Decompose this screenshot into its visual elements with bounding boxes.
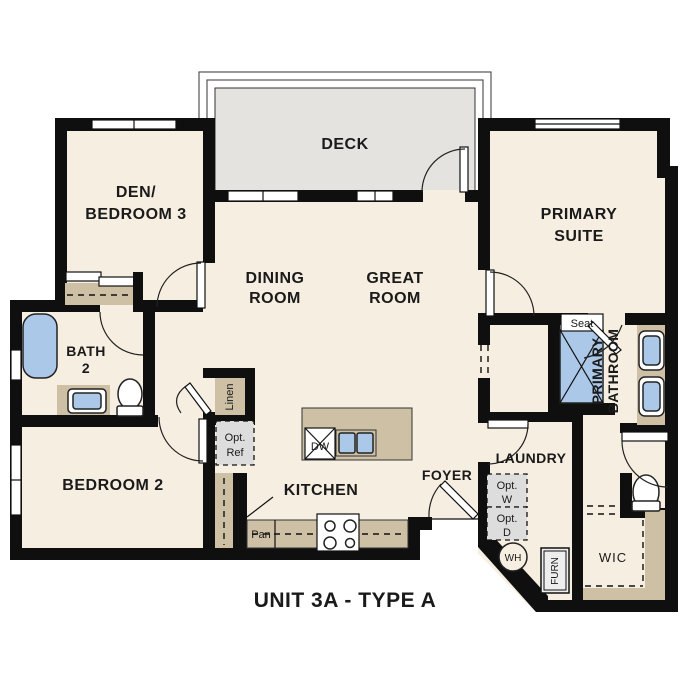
pantry-label: Pan [251, 529, 271, 541]
plan-title: UNIT 3A - TYPE A [254, 589, 437, 612]
floor-plan-drawing: DECK DEN/BEDROOM 3 DININGROOM GREATROOM … [0, 0, 687, 687]
wall-segment [548, 325, 560, 415]
wall-segment [233, 473, 247, 548]
wall-segment [657, 166, 678, 178]
linen-label: Linen [224, 384, 236, 411]
water-heater-label: WH [505, 553, 522, 564]
wall-segment [408, 517, 432, 530]
bath2-toilet-icon [118, 379, 142, 409]
wall-segment [536, 600, 678, 612]
kitchen-label: KITCHEN [284, 482, 359, 499]
primary-bathroom-label: PRIMARYBATHROOM [589, 329, 621, 414]
wall-segment [10, 415, 158, 427]
seat-label: Seat [571, 318, 594, 330]
laundry-label: LAUNDRY [496, 450, 567, 466]
deck-label: DECK [321, 136, 368, 153]
deck-door [460, 147, 468, 192]
bedroom2-door [199, 419, 207, 463]
burner [346, 539, 355, 548]
main-floor [215, 190, 490, 560]
wall-segment [143, 300, 203, 312]
wall-segment [203, 131, 215, 263]
wall-segment [478, 118, 490, 270]
wall-segment [133, 272, 143, 312]
wall-segment [203, 118, 215, 131]
furnace-label: FURN [550, 557, 561, 585]
wall-segment [620, 473, 632, 518]
burner [344, 520, 356, 532]
floor-plan-page: DECK DEN/BEDROOM 3 DININGROOM GREATROOM … [0, 0, 687, 687]
burner [324, 537, 336, 549]
bath2-window [11, 350, 21, 380]
burner [325, 521, 335, 531]
foyer-label: FOYER [422, 467, 472, 483]
bath2-toilet-tank [117, 406, 143, 416]
island-sink-basin [339, 433, 355, 453]
wic-label: WIC [599, 550, 627, 565]
primary-sink-basin [643, 336, 660, 365]
den-door [197, 262, 205, 308]
primary-suite-door [486, 270, 494, 316]
wall-segment [625, 313, 678, 325]
laundry-door [488, 420, 528, 428]
bath2-sink-basin [73, 393, 101, 409]
wall-segment [572, 412, 583, 605]
water-closet-door [622, 432, 668, 441]
dishwasher-label: DW [311, 441, 330, 453]
deck-railing [199, 72, 491, 196]
wic-shelf-bottom [583, 588, 645, 600]
wic-shelf-right [645, 510, 665, 600]
wall-segment [665, 178, 678, 612]
wall-segment [10, 548, 240, 560]
den-closet-slider [66, 272, 101, 281]
primary-sink-basin [643, 382, 660, 411]
island-sink-basin [357, 433, 373, 453]
primary-toilet-tank [632, 501, 660, 511]
bathtub-icon [23, 314, 57, 378]
den-closet-slider [99, 277, 134, 286]
wall-segment [143, 312, 155, 415]
bedroom2-label: BEDROOM 2 [62, 477, 163, 494]
